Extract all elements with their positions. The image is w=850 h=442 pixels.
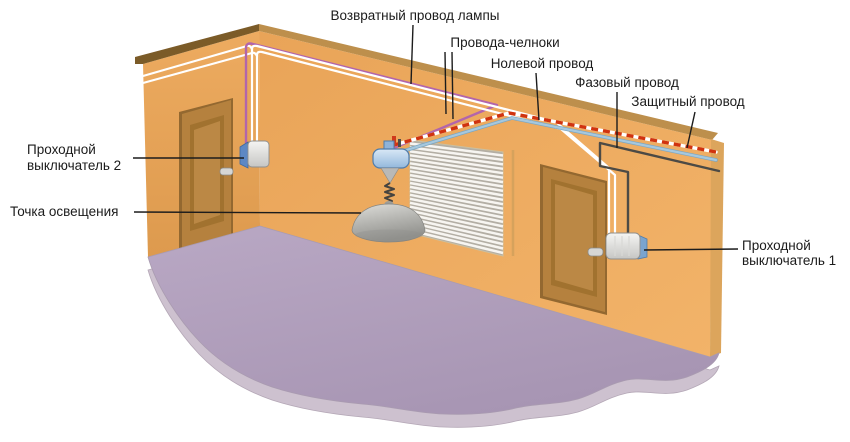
label-protective: Защитный провод bbox=[631, 94, 745, 109]
label-phase: Фазовый провод bbox=[575, 75, 679, 90]
switch-2 bbox=[240, 141, 269, 168]
switch-2-side bbox=[240, 142, 248, 168]
label-switch2-line1: Проходной bbox=[27, 142, 96, 157]
label-travellers: Провода-челноки bbox=[450, 35, 559, 50]
label-neutral: Нолевой провод bbox=[491, 56, 594, 71]
switch-1 bbox=[606, 233, 647, 259]
label-lamp-return: Возвратный провод лампы bbox=[331, 8, 500, 23]
switch-1-body bbox=[606, 233, 640, 259]
left-door bbox=[179, 98, 233, 251]
label-switch1-line1: Проходной bbox=[742, 238, 811, 253]
label-lighting-point: Точка освещения bbox=[10, 204, 118, 219]
leader-lighting-point bbox=[134, 212, 361, 213]
leader-switch1 bbox=[644, 249, 738, 250]
wire-cap-dark bbox=[398, 139, 401, 147]
leader-travellers-2 bbox=[452, 52, 453, 119]
switch-2-body bbox=[248, 141, 269, 167]
right-door-handle bbox=[588, 248, 603, 256]
left-door-handle bbox=[220, 168, 233, 175]
right-door bbox=[540, 164, 607, 315]
lamp-fixture bbox=[373, 149, 409, 168]
label-switch2-line2: выключатель 2 bbox=[27, 158, 121, 173]
room-illustration: Возвратный провод лампы Провода-челноки … bbox=[0, 0, 850, 442]
leader-travellers-1 bbox=[445, 52, 446, 114]
label-switch1-line2: выключатель 1 bbox=[742, 253, 836, 268]
lamp-shade-rim bbox=[355, 230, 423, 241]
wiring-diagram: Возвратный провод лампы Провода-челноки … bbox=[0, 0, 850, 442]
